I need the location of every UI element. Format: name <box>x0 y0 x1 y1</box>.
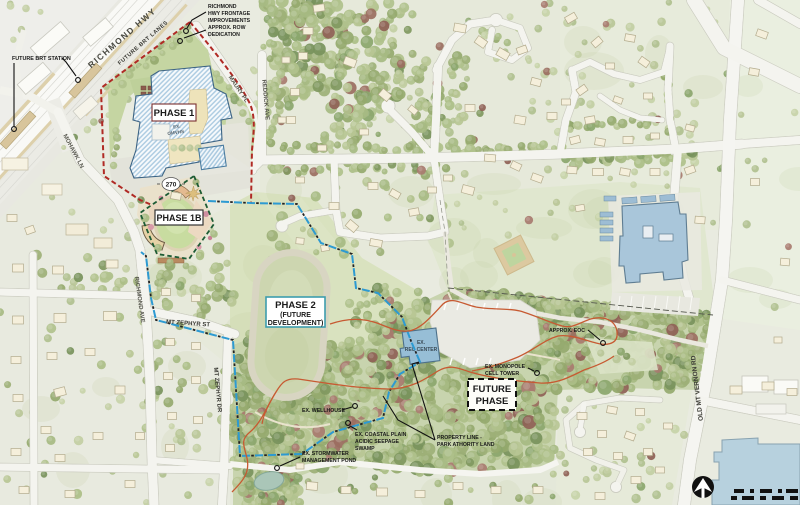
svg-text:EX. MONOPOLE: EX. MONOPOLE <box>485 364 526 370</box>
svg-text:FUTURE: FUTURE <box>473 384 512 395</box>
svg-text:PHASE 1B: PHASE 1B <box>156 213 202 223</box>
svg-text:(FUTURE: (FUTURE <box>280 312 311 319</box>
svg-text:HWY FRONTAGE: HWY FRONTAGE <box>208 11 251 17</box>
svg-text:DEDICATION: DEDICATION <box>208 32 240 38</box>
svg-text:EX. COASTAL PLAIN: EX. COASTAL PLAIN <box>355 432 407 438</box>
svg-text:DEVELOPMENT): DEVELOPMENT) <box>268 320 324 327</box>
svg-text:EX. WELLHOUSE: EX. WELLHOUSE <box>302 408 345 414</box>
svg-text:IMPROVEMENTS: IMPROVEMENTS <box>208 18 251 24</box>
svg-text:ACIDIC SEEPAGE: ACIDIC SEEPAGE <box>355 439 400 445</box>
svg-text:APPROX. ROW: APPROX. ROW <box>208 25 246 31</box>
svg-text:PROPERTY LINE -: PROPERTY LINE - <box>437 435 482 441</box>
svg-text:PHASE: PHASE <box>476 396 509 407</box>
svg-text:REC CENTER: REC CENTER <box>405 347 438 353</box>
svg-text:SWAMP: SWAMP <box>355 446 375 452</box>
svg-text:APPROX. EOC: APPROX. EOC <box>549 328 585 334</box>
svg-text:270: 270 <box>166 182 177 189</box>
svg-text:EX. STORMWATER: EX. STORMWATER <box>302 451 349 457</box>
svg-text:PARK ATHORITY LAND: PARK ATHORITY LAND <box>437 442 495 448</box>
svg-text:PHASE 1: PHASE 1 <box>154 108 195 119</box>
svg-text:RICHMOND: RICHMOND <box>208 4 237 10</box>
svg-text:MANAGEMENT POND: MANAGEMENT POND <box>302 458 356 464</box>
svg-text:EX.: EX. <box>417 340 426 346</box>
svg-text:CELL TOWER: CELL TOWER <box>485 371 519 377</box>
svg-text:PHASE 2: PHASE 2 <box>275 300 316 311</box>
svg-text:FUTURE BRT STATION: FUTURE BRT STATION <box>12 56 71 62</box>
